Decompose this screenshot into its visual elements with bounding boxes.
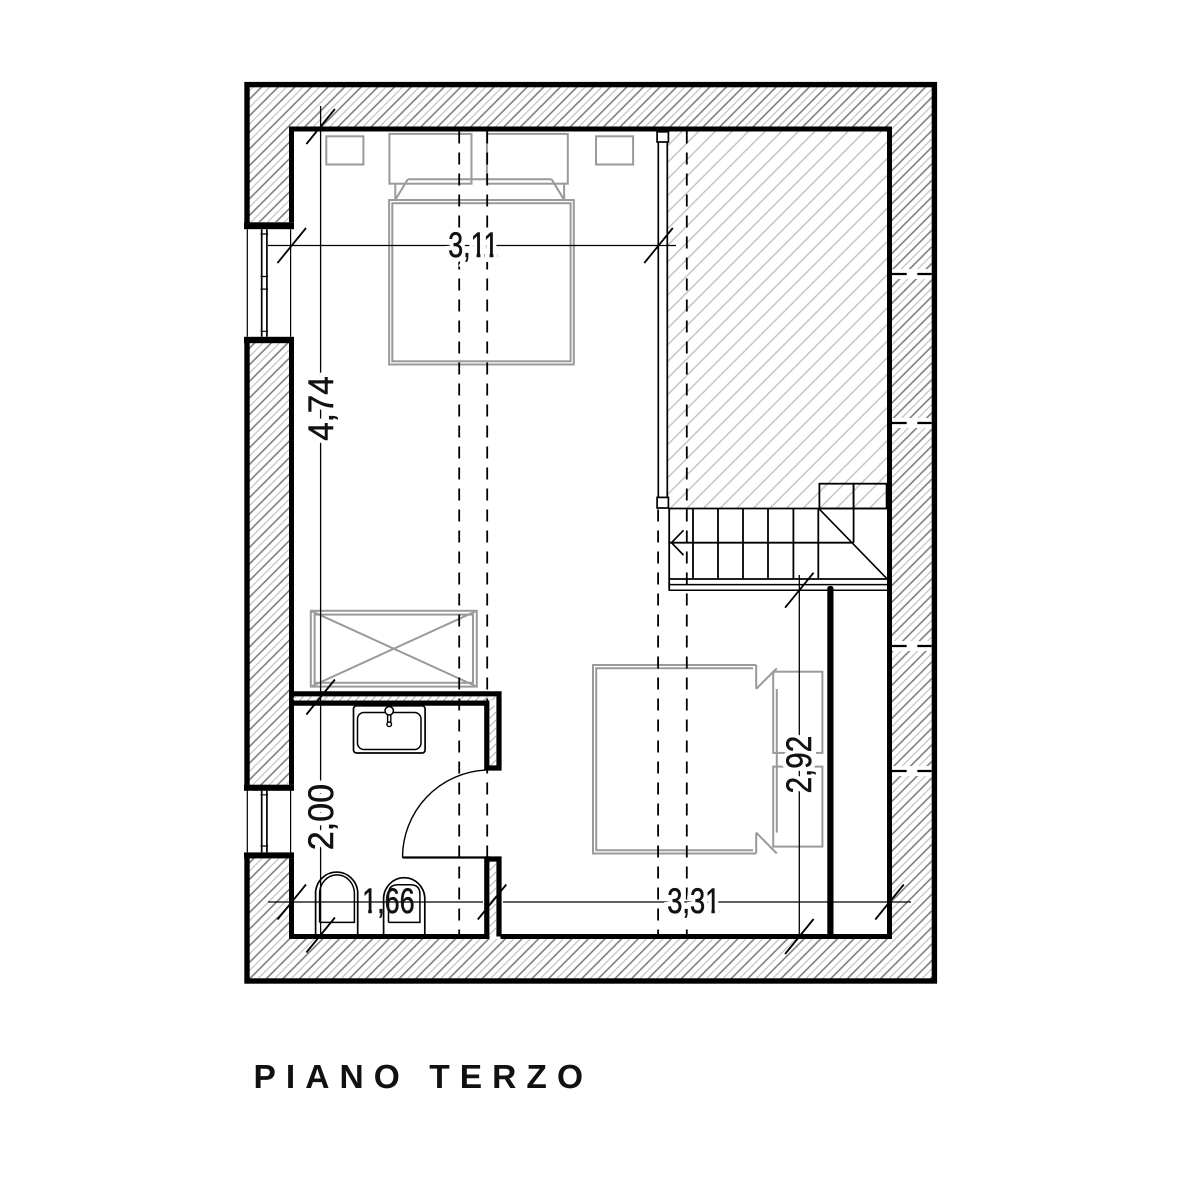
svg-text:3,11: 3,11 — [448, 225, 498, 265]
svg-text:1,66: 1,66 — [362, 881, 415, 921]
svg-text:2,92: 2,92 — [779, 736, 819, 794]
svg-text:4,74: 4,74 — [301, 376, 341, 440]
svg-text:2,00: 2,00 — [301, 784, 341, 850]
svg-text:3,31: 3,31 — [667, 881, 720, 921]
